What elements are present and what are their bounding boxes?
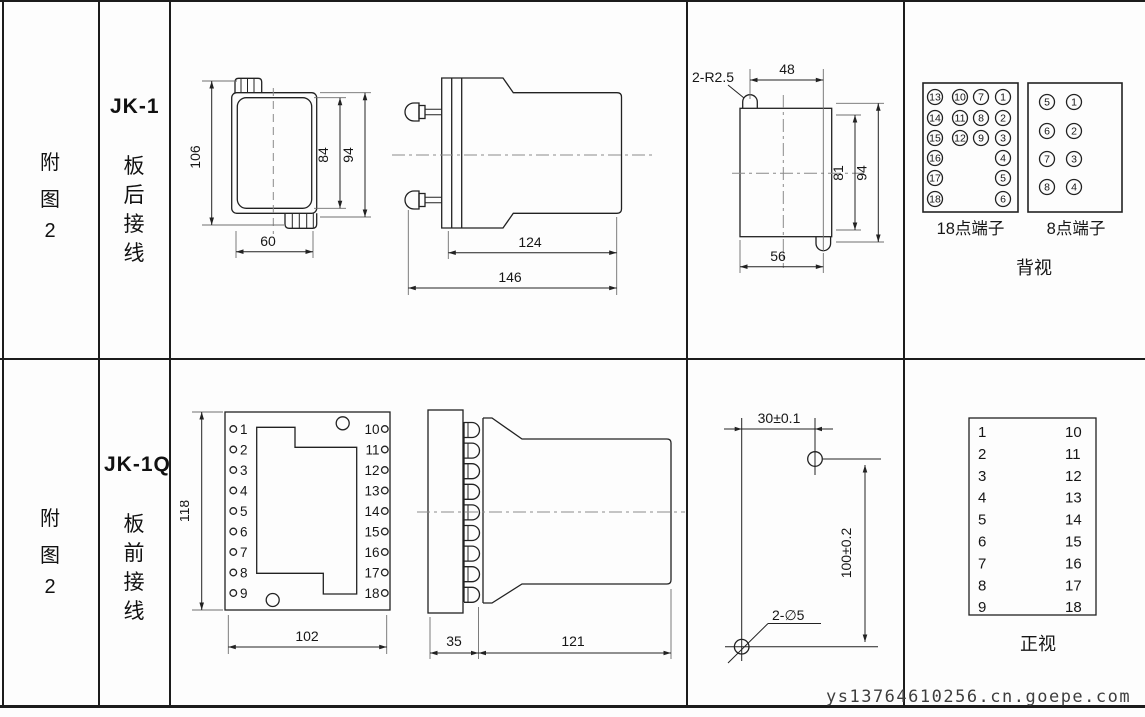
wiring-char: 接 [124,214,145,235]
pin-number: 7 [240,545,248,560]
screw-cap [405,103,419,121]
terminal-screw [405,103,442,121]
mounting-hole [336,417,349,430]
pin-circle [230,446,237,453]
dim-text-100: 100±0.2 [838,528,854,579]
pin-circle [230,426,237,433]
pin-number: 11 [365,442,379,457]
table-number: 3 [978,468,986,485]
terminal18-grid: 131071141182151293164175186 [928,90,1011,207]
jk1-front-view-drawing: 106 84 94 60 [180,55,395,305]
terminal-front-table: 123456789 101112131415161718 正视 [930,400,1145,670]
pin-circle [382,508,389,515]
dim-arrow [816,78,824,83]
table-number: 17 [1065,577,1082,594]
dim-arrow [740,264,748,269]
dim-arrow [735,427,742,431]
pin-number: 9 [240,586,248,601]
pin-number: 18 [364,586,379,601]
pin-circle [230,467,237,474]
top-tab-hatch [241,78,254,92]
dim-text-106: 106 [187,145,203,169]
bottom-tab-hatch [292,213,313,228]
screw-bump [464,423,480,438]
pin-number: 1 [240,422,248,437]
dim-arrow [209,218,214,226]
pin-number: 17 [364,565,379,580]
cutout-outline [740,108,832,236]
screw-washer [419,106,425,119]
pin-circle [230,590,237,597]
table-col-divider-1 [98,0,100,707]
figure-char: 2 [44,220,55,243]
watermark-text: ys13764610256.cn.goepe.com [826,687,1131,707]
mounting-hole-drawing: 30±0.1 100±0.2 2-∅5 [700,395,920,675]
pin-number: 2 [240,442,248,457]
pin-number: 4 [240,483,248,498]
terminal-number: 3 [1000,133,1006,145]
jk1q-side-view-drawing: 35 121 [415,395,695,670]
terminal8-label: 8点端子 [1047,219,1106,238]
terminal-back-views: 131071141182151293164175186 51627384 18点… [905,70,1145,290]
table-number: 10 [1065,424,1082,441]
table-number: 18 [1065,599,1082,616]
radius-note: 2-R2.5 [692,69,734,85]
table-number: 14 [1065,512,1082,529]
relay-body-outline [483,418,671,603]
table-number: 12 [1065,468,1082,485]
pin-circle [382,467,389,474]
front-view-label: 正视 [1020,634,1056,654]
screw-bump [464,567,480,582]
dim-arrow [199,412,204,420]
terminal-number: 16 [929,153,941,165]
dim-text-30: 30±0.1 [758,410,801,426]
table-border-top [0,0,1145,2]
table-number: 5 [978,512,986,529]
leader-line [728,85,744,98]
terminal-number: 2 [1071,126,1077,138]
model-label-jk1q: JK-1Q [104,453,171,477]
dim-arrow [750,78,758,83]
screw-shaft [425,109,442,114]
pin-number: 12 [364,463,379,478]
terminal-number: 10 [954,92,966,104]
terminal-number: 8 [978,113,984,125]
dim-arrow [209,81,214,89]
terminal-number: 11 [955,113,966,125]
wiring-char: 前 [124,543,145,564]
drawing-sheet: 附 图 2 JK-1 板 后 接 线 附 图 2 JK-1Q 板 前 接 线 1… [0,0,1145,717]
table-right-column: 101112131415161718 [1065,424,1082,616]
figure-label-top: 附 图 2 [28,142,72,247]
dim-text-94-overall: 94 [854,165,870,181]
table-left-column: 123456789 [978,424,986,616]
dim-arrow [408,286,416,291]
table-number: 13 [1065,490,1082,507]
dim-arrow [306,249,314,254]
figure-char: 附 [40,146,60,175]
dim-arrow [338,201,343,209]
dim-text-84: 84 [315,147,331,163]
terminal-number: 4 [1000,153,1006,165]
terminal-number: 18 [929,194,941,206]
screw-bump [464,464,480,479]
dim-arrow [338,98,343,106]
dim-arrow [863,635,868,643]
dim-arrow [863,465,868,473]
dim-text-121: 121 [561,633,585,649]
figure-char: 附 [40,502,60,531]
dim-text-81: 81 [830,165,846,181]
hole-diameter-note: 2-∅5 [772,607,805,623]
mounting-hole [266,594,279,607]
pin-number: 14 [364,504,380,519]
pin-number: 13 [364,483,379,498]
wiring-char: 线 [124,601,145,622]
dim-arrow [379,645,387,650]
bottom-mounting-tab [285,213,317,228]
figure-char: 图 [40,183,60,212]
wiring-char: 板 [124,156,145,177]
terminal-number: 3 [1071,154,1077,166]
pin-number: 8 [240,565,248,580]
pin-circle [230,569,237,576]
table-number: 2 [978,446,986,463]
jk1q-right-terminals: 101112131415161718 [364,422,388,601]
dim-arrow [815,427,822,431]
dim-text-118: 118 [180,500,192,523]
terminal18-label: 18点端子 [937,219,1005,238]
dim-arrow [876,103,881,111]
pin-number: 10 [364,422,379,437]
terminal-number: 1 [1071,97,1077,109]
dim-arrow [228,645,236,650]
relay-outer-outline [232,93,317,214]
jk1-panel-cutout-drawing: 2-R2.5 48 81 94 56 [690,55,905,300]
dim-arrow [471,651,479,656]
dim-arrow [236,249,244,254]
figure-char: 2 [44,576,55,599]
dim-text-124: 124 [518,234,542,250]
table-number: 9 [978,599,986,616]
wiring-type-bottom: 板 前 接 线 [112,510,156,626]
relay-body-outline [442,78,622,228]
pin-circle [230,487,237,494]
dim-text-56: 56 [770,248,786,264]
dim-text-102: 102 [295,628,319,644]
terminal-number: 6 [1000,194,1006,206]
terminal-number: 12 [954,133,966,145]
table-number: 8 [978,577,986,594]
dim-text-35: 35 [446,633,462,649]
dim-arrow [199,603,204,611]
terminal-number: 9 [978,133,984,145]
relay-inner-outline [237,98,311,209]
terminal-number: 4 [1071,182,1077,194]
terminal-screw [405,191,442,209]
terminal-number: 15 [929,133,941,145]
dim-arrow [853,115,858,123]
figure-char: 图 [40,539,60,568]
terminal-number: 8 [1044,182,1050,194]
table-number: 6 [978,534,986,551]
table-number: 15 [1065,534,1082,551]
jk1q-left-terminals: 123456789 [230,422,248,601]
terminal-number: 2 [1000,113,1006,125]
table-number: 4 [978,490,986,507]
table-number: 1 [978,424,986,441]
screw-bump [464,587,480,602]
jk1-side-view-drawing: 124 146 [390,55,670,305]
wiring-char: 后 [124,185,145,206]
pin-circle [382,590,389,597]
terminal-number: 17 [929,173,941,185]
top-mounting-tab [235,78,262,92]
terminal-number: 7 [978,92,984,104]
wiring-char: 线 [124,243,145,264]
pin-number: 3 [240,463,248,478]
pin-circle [382,528,389,535]
back-view-label: 背视 [1016,258,1052,278]
pin-circle [382,569,389,576]
table-row-divider [0,358,1145,360]
dim-text-60: 60 [260,233,276,249]
pin-circle [382,446,389,453]
pin-number: 16 [364,545,379,560]
dim-arrow [430,651,438,656]
pin-number: 15 [364,524,379,539]
dim-arrow [816,264,824,269]
dim-arrow [664,651,672,656]
dim-arrow [363,93,368,101]
terminal-number: 5 [1000,173,1006,185]
screw-bump [464,484,480,499]
wiring-type-top: 板 后 接 线 [112,152,156,268]
screw-washer [419,194,425,207]
terminal-number: 1 [1000,92,1006,104]
terminal-number: 13 [929,92,941,104]
dim-text-94: 94 [340,147,356,163]
dim-arrow [448,250,456,255]
pin-circle [382,487,389,494]
wiring-char: 接 [124,572,145,593]
dim-arrow [876,235,881,243]
terminal-number: 14 [929,113,941,125]
table-border-left [2,2,4,707]
table-number: 11 [1065,446,1081,463]
model-label-jk1: JK-1 [110,95,160,119]
dim-arrow [609,286,617,291]
wiring-char: 板 [124,514,145,535]
screw-cap [405,191,419,209]
terminal-number: 7 [1044,154,1050,166]
table-number: 16 [1065,555,1082,572]
terminal8-grid: 51627384 [1040,95,1082,195]
leader-line [728,624,768,664]
pin-number: 6 [240,524,248,539]
terminal-number: 6 [1044,126,1050,138]
pin-circle [230,528,237,535]
pin-number: 5 [240,504,248,519]
pin-circle [230,549,237,556]
table-number: 7 [978,555,986,572]
dim-arrow [609,250,617,255]
screw-bump [464,526,480,541]
terminal-number: 5 [1044,97,1050,109]
pin-circle [230,508,237,515]
figure-label-bottom: 附 图 2 [28,498,72,603]
screw-shaft [425,197,442,202]
jk1q-front-view-drawing: 123456789 101112131415161718 118 102 [180,395,420,670]
dim-arrow [363,210,368,218]
screw-bump [464,546,480,561]
dim-text-48: 48 [779,61,795,77]
dim-arrow [853,223,858,231]
inner-cover-outline [257,427,357,594]
dim-text-146: 146 [498,269,522,285]
screw-bump [464,443,480,458]
pin-circle [382,549,389,556]
dim-arrow [479,651,487,656]
pin-circle [382,426,389,433]
table-col-divider-2 [169,0,171,707]
